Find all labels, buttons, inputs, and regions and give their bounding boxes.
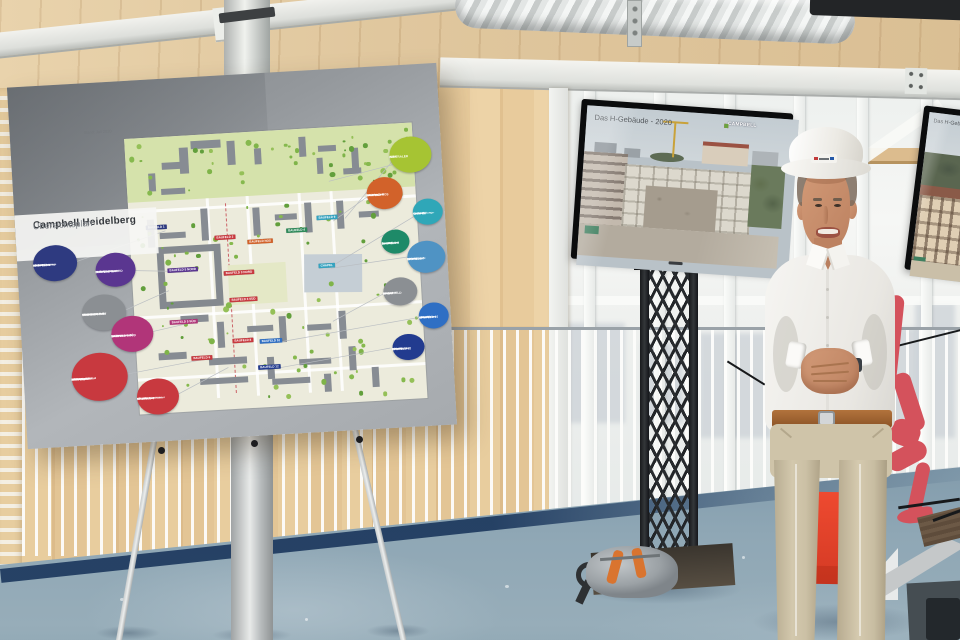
easel-knob — [356, 436, 363, 443]
pant-crease — [795, 464, 797, 636]
construction-site-photo: Das H-Gebäude - 2020 CAMPBELL Das H-Gebä… — [0, 0, 960, 640]
easel-knob — [158, 447, 165, 454]
site-plan-poster: Stand: Juli 2020 BAUFELD 1BAUFELD 2BAUFE… — [7, 63, 457, 449]
plan-bubble-chapel: CHAPELBestand• Veranstaltungs-ort für al… — [412, 198, 443, 226]
easel-center-pole — [231, 428, 273, 640]
plan-bubble-baufeld-nos: BAUFELD NOSSanierung• Wohnen undGewerbe•… — [366, 176, 404, 210]
easel-knob — [251, 440, 258, 447]
paint-speck — [505, 585, 509, 588]
plan-bubble-baufeld-5-nord: BAUFELD 5 NORDNeubau• Mietwohnungen• exk… — [95, 252, 137, 288]
bolted-plate — [905, 68, 928, 95]
teeth-smile — [818, 229, 838, 234]
pant-leg-right — [835, 460, 887, 640]
perforated-hanger-bracket — [627, 0, 642, 47]
shirt-button — [826, 316, 829, 319]
plan-bubble-baufelder-2-3-4: BAUFELDER2, 3 NORD, 3 SÜD, 4Neubau• Wohn… — [70, 351, 129, 402]
plan-bubble-baufeld-5-sued: BAUFELD 5 SÜDNeubau• Mietwohnungenfrei f… — [110, 315, 154, 353]
eye-left — [815, 204, 822, 207]
presenter — [735, 120, 915, 640]
pant-leg-left — [774, 460, 820, 640]
plan-bubble-baufeld-7: BAUFELD 7Bestand• Bürogebäudesaniert• Ve… — [406, 240, 446, 274]
paint-speck — [305, 618, 308, 621]
eyebrow-right — [833, 198, 842, 201]
hard-hat-logo — [811, 154, 837, 163]
pant-crease — [859, 464, 861, 636]
plan-bubble-park: ZENTRALERPARK — [388, 135, 432, 173]
black-case — [926, 598, 960, 640]
plan-bubble-baufeld-12: BAUFELD 12Bestand• Büroflächen• Studiere… — [392, 333, 425, 361]
eyebrow-left — [813, 198, 822, 201]
nose — [823, 206, 828, 224]
plan-bubble-layer: BAUFELD 1Neubau• Solar-Parkgaragemit E-L… — [7, 63, 457, 449]
plan-bubble-sportfeld: SPORTFELDBestand• Freisport-anlagen — [383, 276, 419, 306]
finger-line — [813, 380, 847, 382]
plan-bubble-baufeld-6: BAUFELD 6Neubau• 21-Geschoss-Haus• Studi… — [136, 377, 180, 415]
shirt-button — [826, 344, 829, 347]
plan-bubble-baufeld-10: BAUFELD 10Bestand• Mietwohnensaniert• Bü… — [418, 302, 449, 330]
easel-shadow — [96, 626, 160, 640]
duffel-bag — [576, 540, 688, 606]
truss-rail-right — [689, 268, 698, 560]
plan-bubble-baufeld-9: BAUFELD 9BestandSporthalle mitGastronomi… — [381, 229, 410, 255]
plan-bubble-baufeld-1: BAUFELD 1Neubau• Solar-Parkgaragemit E-L… — [32, 244, 78, 282]
truss-rail-left — [640, 268, 649, 560]
shirt-button — [826, 288, 829, 291]
eye-right — [834, 204, 841, 207]
truss-lattice — [649, 268, 689, 560]
